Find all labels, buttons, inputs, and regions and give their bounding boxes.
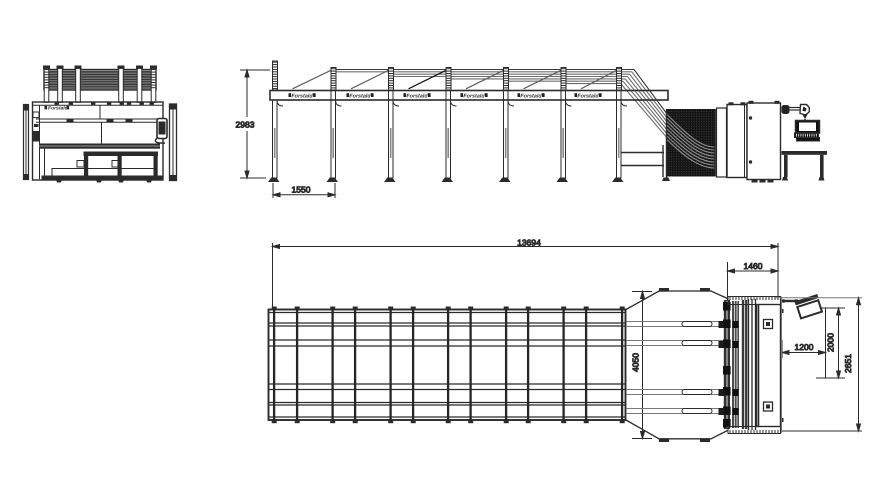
- svg-text:13694: 13694: [517, 237, 541, 247]
- svg-text:Forstald: Forstald: [463, 93, 485, 99]
- svg-text:2000: 2000: [826, 333, 836, 352]
- svg-text:Forstald: Forstald: [406, 93, 428, 99]
- svg-text:1550: 1550: [292, 184, 311, 194]
- svg-text:Forstald: Forstald: [291, 93, 313, 99]
- svg-text:1200: 1200: [795, 342, 814, 352]
- svg-text:Forstald: Forstald: [48, 105, 69, 111]
- svg-text:2983: 2983: [236, 120, 255, 130]
- svg-text:2651: 2651: [843, 354, 853, 373]
- svg-text:1460: 1460: [744, 261, 763, 271]
- svg-text:4050: 4050: [631, 353, 641, 372]
- svg-text:Forstald: Forstald: [349, 93, 371, 99]
- svg-text:Forstald: Forstald: [577, 93, 599, 99]
- svg-text:Forstald: Forstald: [520, 93, 542, 99]
